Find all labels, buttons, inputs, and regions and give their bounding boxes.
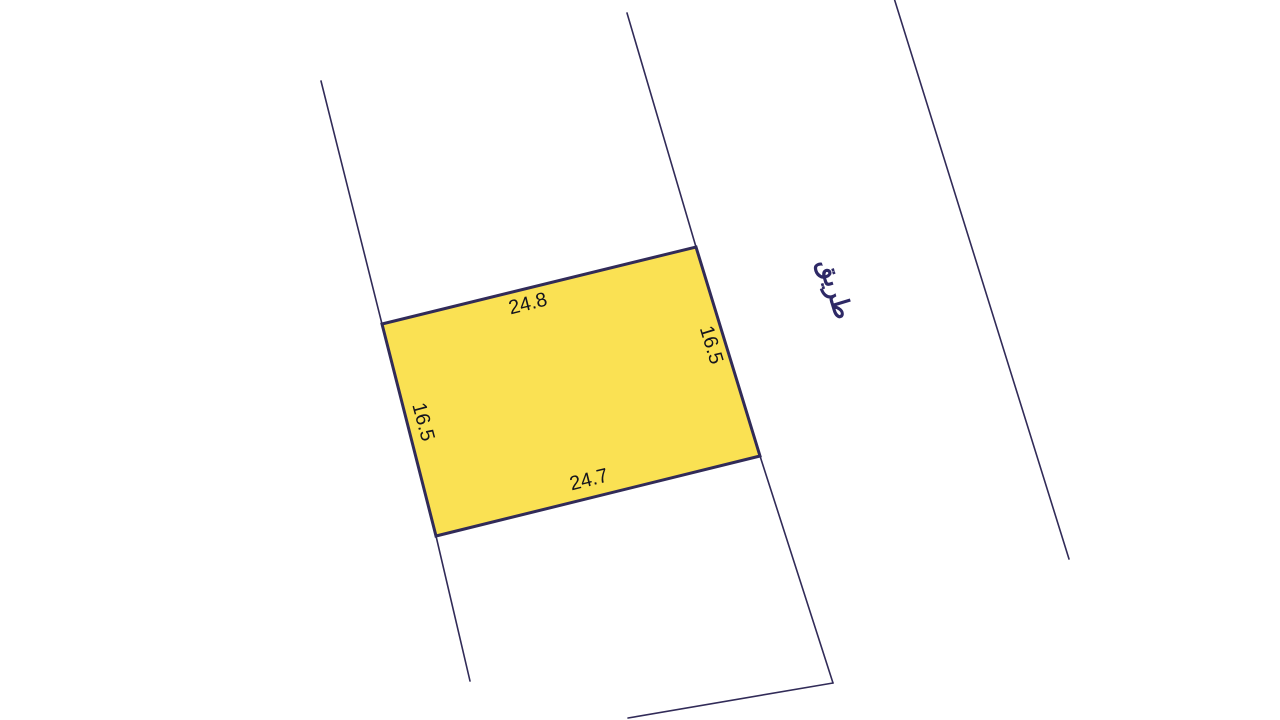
survey-map: 24.816.524.716.5 طريق xyxy=(0,0,1280,720)
road-label: طريق xyxy=(812,256,858,323)
south-plot-boundary xyxy=(628,683,833,718)
parcel-polygon[interactable] xyxy=(382,247,760,536)
road-east-boundary xyxy=(894,0,1069,559)
